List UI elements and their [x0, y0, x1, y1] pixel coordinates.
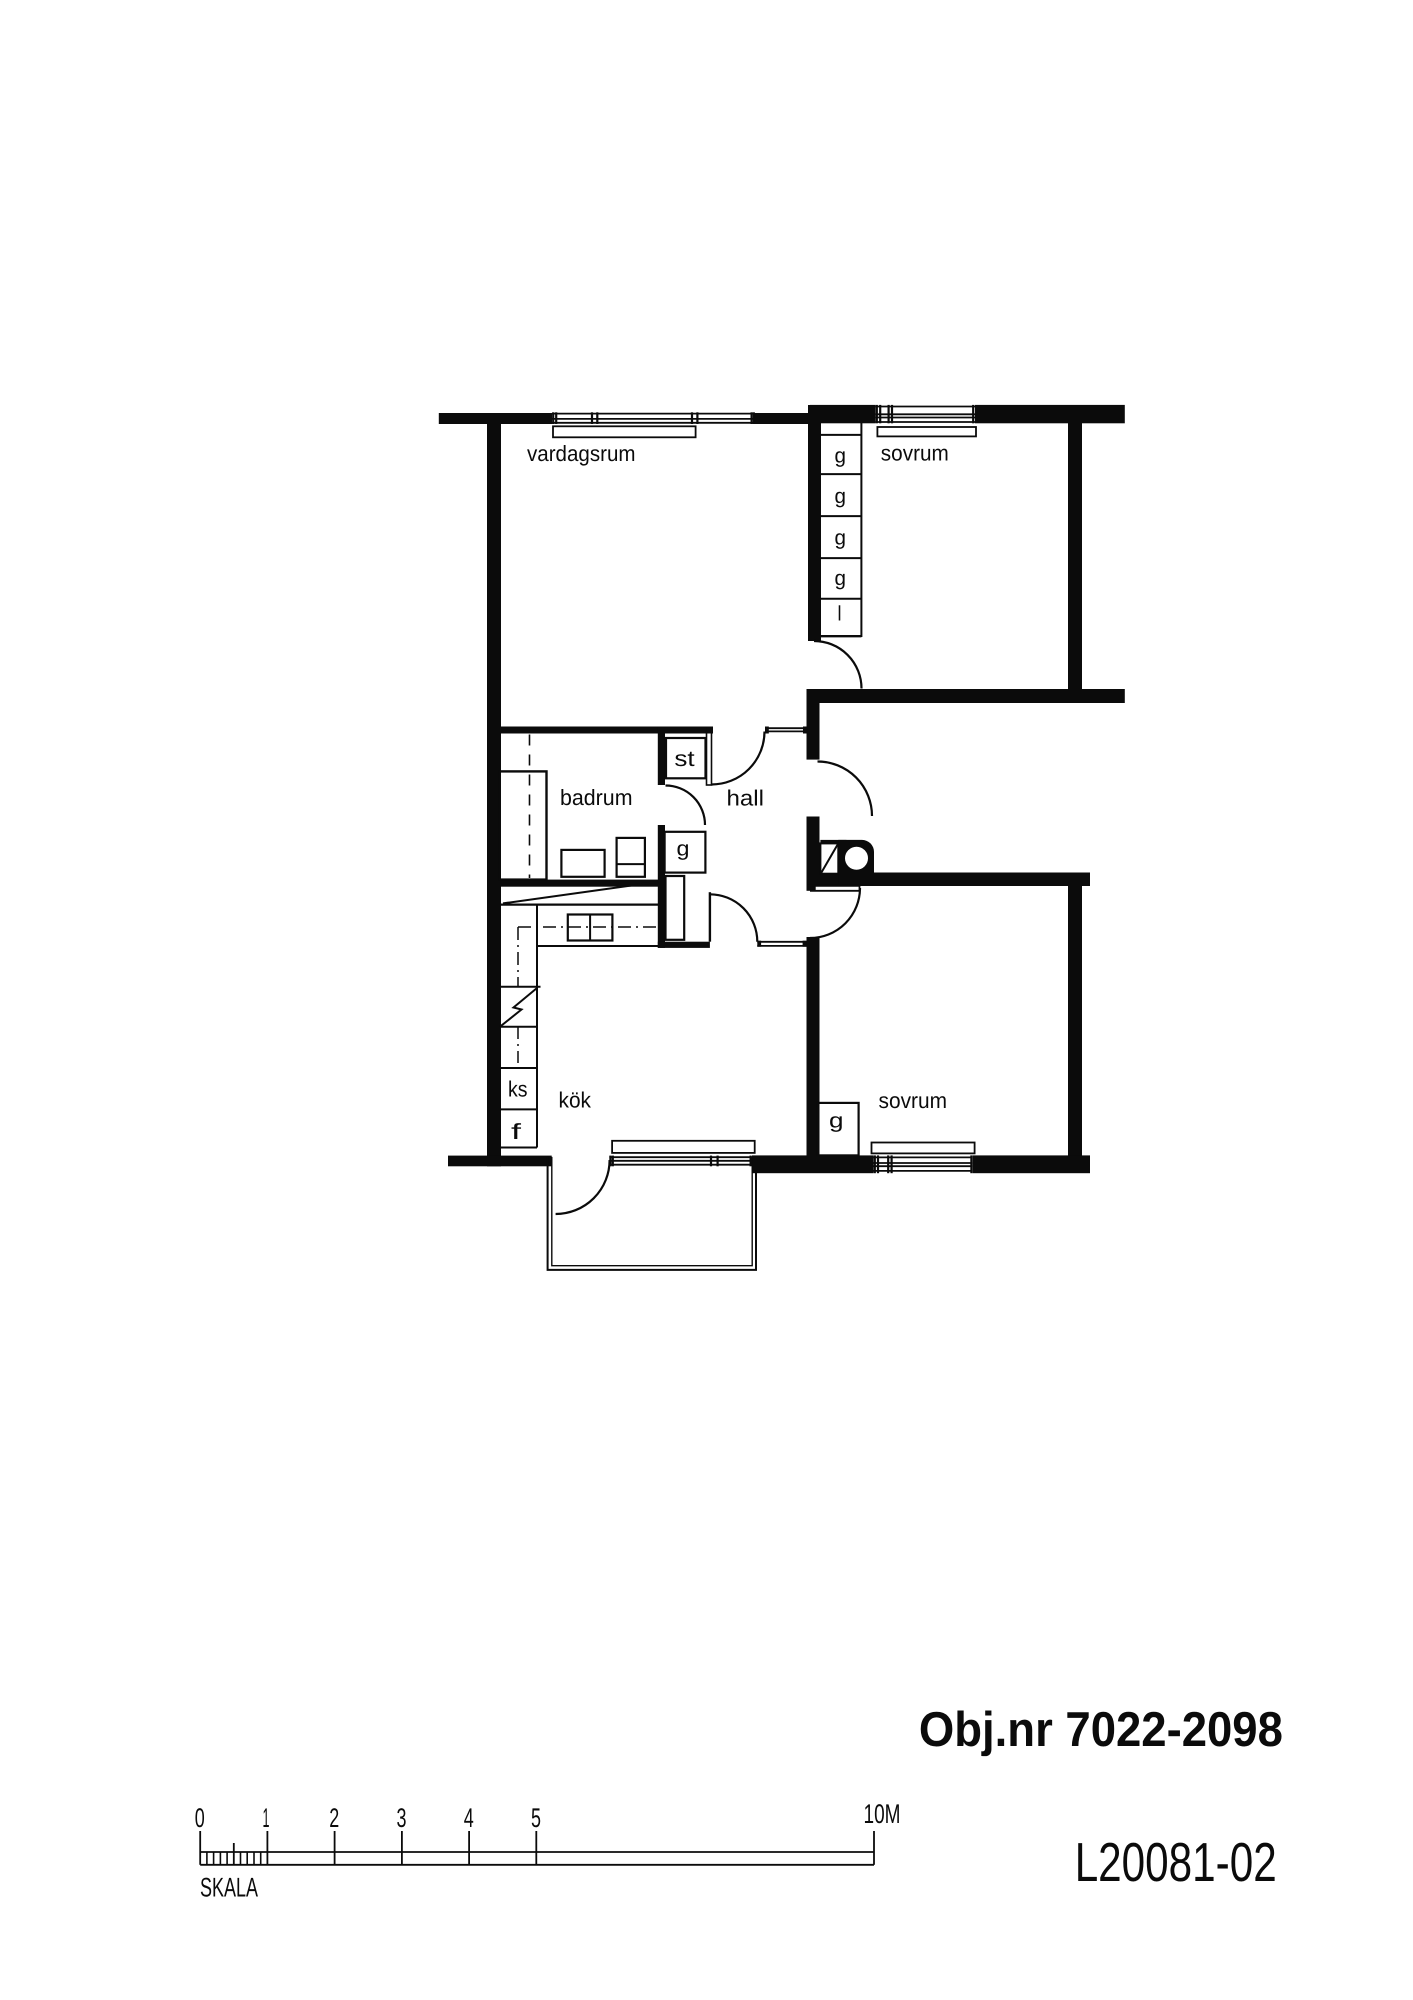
svg-text:5: 5 [531, 1803, 541, 1833]
svg-text:Obj.nr 7022-2098: Obj.nr 7022-2098 [919, 1703, 1283, 1757]
svg-text:g: g [835, 567, 847, 590]
svg-text:g: g [829, 1110, 844, 1133]
svg-text:4: 4 [464, 1803, 474, 1833]
svg-text:sovrum: sovrum [881, 441, 949, 466]
svg-text:ks: ks [508, 1077, 528, 1102]
svg-text:l: l [838, 602, 842, 625]
svg-text:0: 0 [195, 1803, 205, 1833]
svg-text:3: 3 [397, 1803, 407, 1833]
svg-text:L20081-02: L20081-02 [1075, 1831, 1277, 1893]
svg-text:g: g [677, 838, 690, 861]
svg-text:sovrum: sovrum [879, 1088, 948, 1113]
svg-text:2: 2 [329, 1803, 339, 1833]
svg-text:g: g [835, 485, 847, 508]
svg-text:1: 1 [263, 1803, 270, 1833]
svg-text:SKALA: SKALA [200, 1873, 258, 1903]
svg-text:hall: hall [727, 786, 765, 811]
svg-text:g: g [835, 527, 847, 550]
svg-text:f: f [511, 1119, 522, 1144]
svg-text:g: g [835, 445, 847, 468]
svg-text:st: st [674, 746, 694, 771]
svg-text:badrum: badrum [560, 785, 633, 810]
svg-text:kök: kök [559, 1088, 592, 1113]
svg-text:vardagsrum: vardagsrum [527, 441, 636, 466]
svg-text:10M: 10M [864, 1799, 901, 1829]
